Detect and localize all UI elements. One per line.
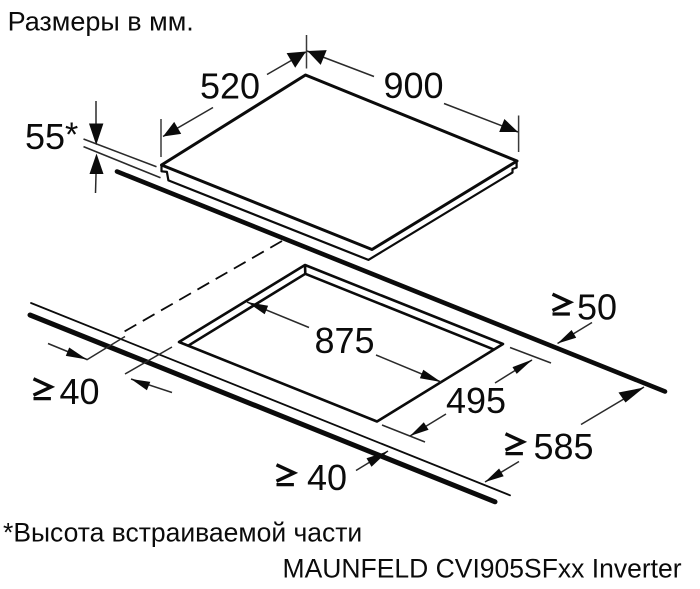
svg-text:MAUNFELD CVI905SFxx Inverter: MAUNFELD CVI905SFxx Inverter bbox=[283, 554, 682, 584]
svg-text:55*: 55* bbox=[25, 116, 78, 157]
svg-text:900: 900 bbox=[384, 65, 444, 106]
svg-text:Размеры в мм.: Размеры в мм. bbox=[8, 7, 194, 37]
svg-text:40: 40 bbox=[60, 371, 100, 412]
svg-text:875: 875 bbox=[315, 320, 375, 361]
svg-text:585: 585 bbox=[534, 426, 594, 467]
svg-text:520: 520 bbox=[200, 66, 260, 107]
svg-text:40: 40 bbox=[307, 457, 347, 498]
svg-text:*Высота встраиваемой части: *Высота встраиваемой части bbox=[3, 518, 362, 548]
svg-text:495: 495 bbox=[446, 380, 506, 421]
svg-text:50: 50 bbox=[577, 286, 617, 327]
